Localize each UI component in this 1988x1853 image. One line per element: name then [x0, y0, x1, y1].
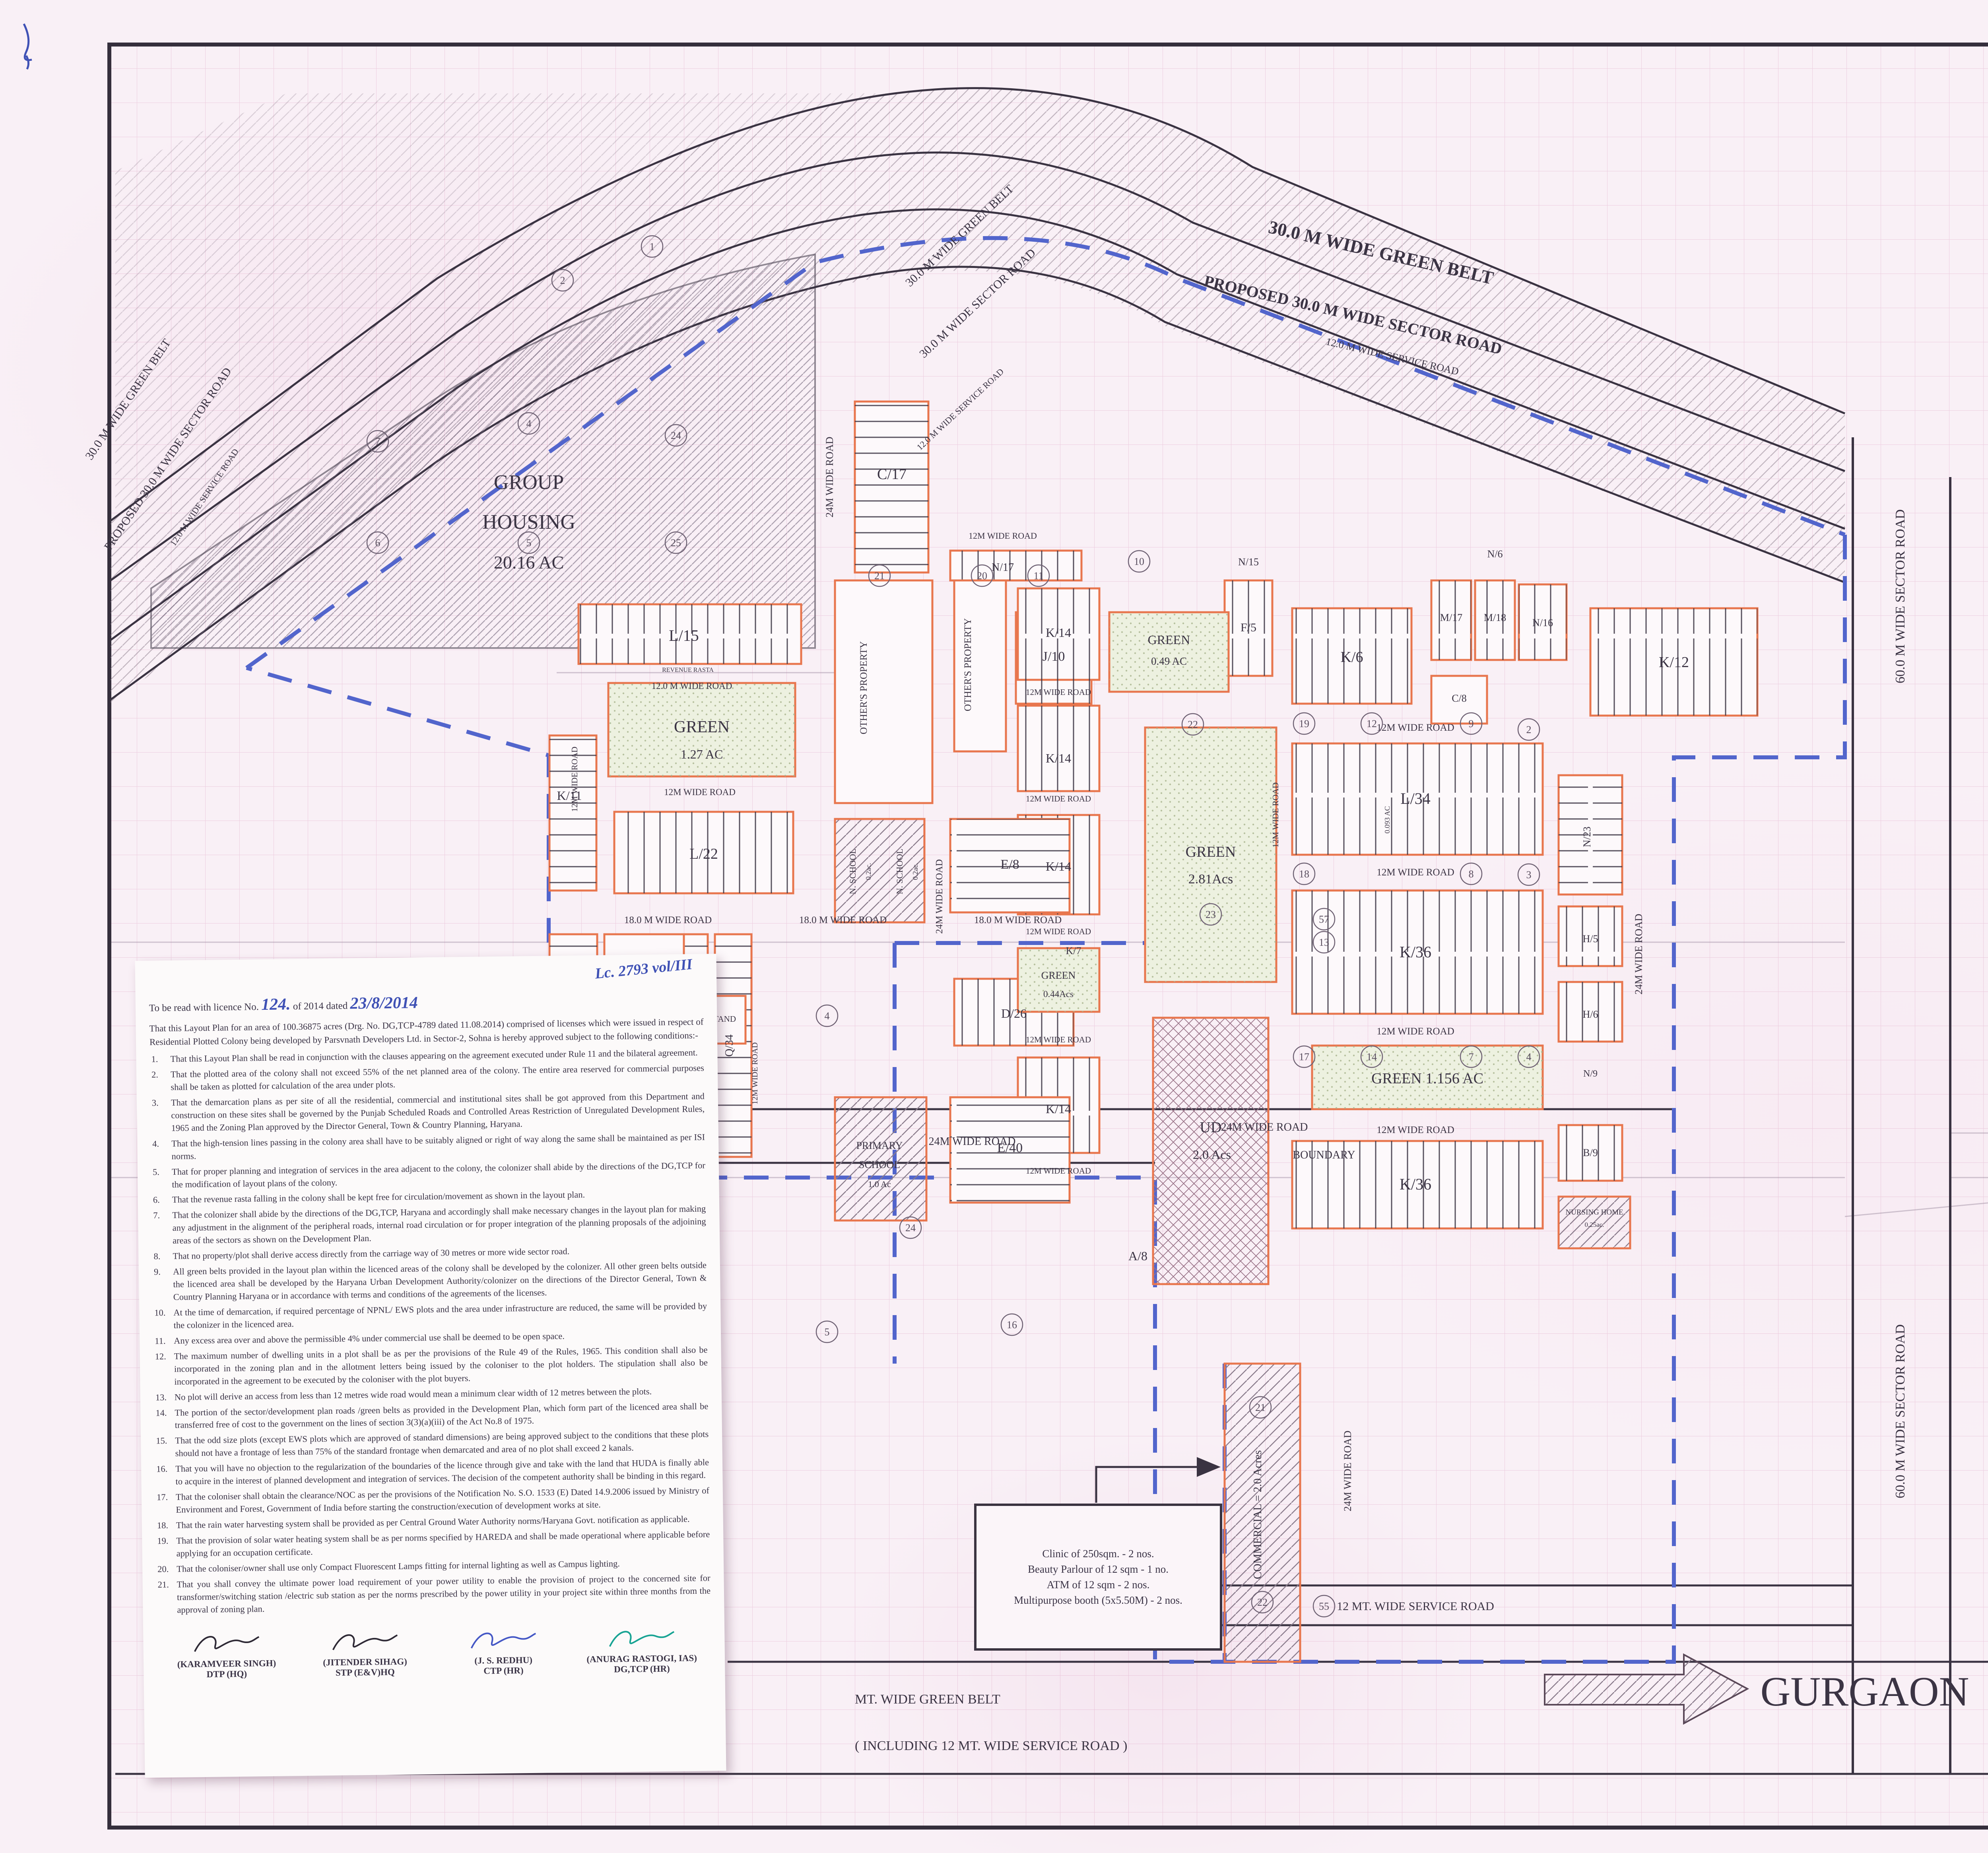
plot-number: 6	[375, 537, 381, 549]
note-box-line: ATM of 12 sqm - 2 nos.	[977, 1579, 1220, 1591]
map-label: 12M WIDE ROAD	[1376, 1125, 1454, 1135]
plot-number: 2	[560, 275, 565, 286]
signatory: (ANURAG RASTOGI, IAS) DG,TCP (HR)	[576, 1623, 707, 1675]
licence-line-mid: of 2014 dated	[293, 1000, 348, 1012]
plot-number: 21	[1255, 1402, 1266, 1413]
map-label: K/7	[1066, 945, 1081, 957]
licence-condition: That you will have no objection to the r…	[175, 1456, 709, 1488]
map-label: OTHER'S PROPERTY	[858, 641, 869, 734]
map-label: 60.0 M WIDE SECTOR ROAD	[1893, 509, 1908, 683]
map-label: GREEN 1.156 AC	[1371, 1070, 1483, 1087]
signatory: (JITENDER SIHAG) STP (E&V)HQ	[299, 1627, 431, 1678]
map-label: N/17	[992, 561, 1014, 574]
licence-line: To be read with licence No. 124. of 2014…	[149, 990, 703, 1016]
plot-number: 57	[1319, 914, 1329, 925]
plot-number: 8	[1469, 868, 1474, 880]
licence-condition: That for proper planning and integration…	[172, 1159, 706, 1191]
map-label: H/6	[1583, 1009, 1598, 1020]
note-box-line: Beauty Parlour of 12 sqm - 1 no.	[977, 1563, 1220, 1576]
licence-condition: That the provision of solar water heatin…	[176, 1528, 710, 1560]
plot-number: 24	[905, 1222, 916, 1234]
plot-number: 9	[1469, 718, 1474, 730]
map-label: SCHOOL	[859, 1159, 900, 1170]
map-label: 20.16 AC	[494, 552, 564, 572]
map-label: 12M WIDE ROAD	[664, 787, 736, 797]
map-label: 12M WIDE ROAD	[1376, 867, 1454, 878]
map-label: 12M WIDE ROAD	[1026, 687, 1091, 697]
drawing-sheet: 30.0 M WIDE GREEN BELTPROPOSED 30.0 M WI…	[0, 0, 1988, 1853]
map-label: K/14	[1046, 625, 1071, 640]
map-label: 12M WIDE ROAD	[1026, 927, 1091, 936]
map-label: 24M WIDE ROAD	[1633, 914, 1644, 994]
map-label: H/5	[1583, 933, 1598, 945]
map-label: 60.0 M WIDE SECTOR ROAD	[1893, 1324, 1908, 1498]
map-label: 12M WIDE ROAD	[1376, 1026, 1454, 1037]
map-label: 12M WIDE ROAD	[1026, 1035, 1091, 1044]
plot-number: 22	[1257, 1597, 1268, 1608]
map-label: 24M WIDE ROAD	[1221, 1121, 1308, 1133]
map-label: 24M WIDE ROAD	[929, 1135, 1016, 1148]
map-label: D/26	[1001, 1006, 1027, 1021]
licence-no-handwritten: 124.	[261, 995, 291, 1014]
map-label: L/34	[1400, 790, 1431, 807]
licence-condition: The maximum number of dwelling units in …	[174, 1343, 708, 1388]
plot-number: 4	[526, 418, 532, 429]
map-label: N. SCHOOL	[848, 849, 858, 894]
map-label: HOUSING	[482, 511, 575, 534]
map-label: 2.81Acs	[1188, 872, 1233, 887]
licence-condition: That the plotted area of the colony shal…	[171, 1062, 705, 1094]
map-label: REVENUE RASTA	[662, 667, 714, 673]
licence-condition: That the coloniser shall obtain the clea…	[176, 1484, 710, 1516]
licence-condition: That you shall convey the ultimate power…	[177, 1572, 711, 1616]
plot-number: 11	[1033, 570, 1043, 582]
map-label: K/14	[1046, 751, 1071, 765]
plot-number: 4	[1526, 1051, 1532, 1063]
signatory-title: STP (E&V)HQ	[299, 1667, 431, 1678]
map-label: 2.0 Acs	[1193, 1147, 1231, 1162]
map-label: 12M WIDE ROAD	[751, 1042, 759, 1104]
licence-condition: All green belts provided in the layout p…	[173, 1259, 707, 1304]
map-label: K/36	[1400, 1175, 1431, 1193]
plot-number: 7	[1469, 1051, 1474, 1063]
plot-number: 13	[1319, 937, 1329, 948]
plot-number: 2	[1526, 724, 1532, 735]
map-label: 12 MT. WIDE SERVICE ROAD	[1337, 1600, 1494, 1613]
plot-number: 24	[671, 430, 681, 441]
licence-conditions-sheet: Lc. 2793 vol/III To be read with licence…	[135, 954, 726, 1778]
map-label: K/6	[1341, 649, 1363, 666]
map-label: PRIMARY	[856, 1140, 903, 1151]
map-label: F/5	[1241, 621, 1256, 634]
map-label: GROUP	[494, 471, 564, 494]
plot-number: 23	[1206, 909, 1216, 920]
map-label: GREEN	[1186, 844, 1236, 860]
map-label: K/14	[1046, 1102, 1071, 1116]
map-label: L/22	[689, 846, 718, 862]
plot-number: 3	[1526, 869, 1532, 881]
map-label: C/8	[1452, 693, 1467, 704]
signatory-title: DG,TCP (HR)	[576, 1663, 707, 1675]
signature-squiggle	[606, 1624, 678, 1652]
map-label: 12M WIDE ROAD	[1026, 1166, 1091, 1176]
commercial-facilities-note: Clinic of 250sqm. - 2 nos. Beauty Parlou…	[974, 1504, 1222, 1651]
map-label: 12M WIDE ROAD	[1271, 782, 1280, 848]
map-label: B/9	[1583, 1147, 1598, 1158]
signatories-row: (KARAMVEER SINGH) DTP (HQ) (JITENDER SIH…	[157, 1623, 711, 1680]
licence-ref-handwritten: Lc. 2793 vol/III	[594, 955, 693, 982]
map-label: N. SCHOOL	[895, 849, 905, 894]
plot-number: 20	[977, 570, 987, 582]
plot-number: 10	[1134, 556, 1144, 567]
plot-number: 18	[1299, 868, 1309, 880]
licence-condition: At the time of demarcation, if required …	[173, 1300, 707, 1331]
map-label: 24M WIDE ROAD	[1342, 1430, 1353, 1511]
map-label: N/6	[1487, 548, 1503, 560]
map-label: K/36	[1400, 943, 1431, 961]
signatory-title: CTP (HR)	[438, 1665, 569, 1676]
map-label: 24M WIDE ROAD	[824, 437, 835, 517]
map-label: J/10	[1043, 649, 1065, 664]
licence-conditions-list: That this Layout Plan shall be read in c…	[149, 1046, 711, 1616]
licence-condition: That the colonizer shall abide by the di…	[172, 1203, 706, 1247]
map-label: L/15	[669, 627, 699, 644]
licence-line-pre: To be read with licence No.	[149, 1001, 259, 1013]
signatory-name: (ANURAG RASTOGI, IAS)	[576, 1653, 707, 1665]
map-label: 12M WIDE ROAD	[969, 531, 1037, 541]
plot-number: 1	[650, 241, 655, 252]
plot-number: 7	[375, 436, 381, 447]
signatory: (KARAMVEER SINGH) DTP (HQ)	[161, 1628, 292, 1680]
map-label: N/9	[1583, 1069, 1598, 1079]
map-label: 12M WIDE ROAD	[1376, 722, 1454, 733]
signatory-name: (KARAMVEER SINGH)	[161, 1658, 292, 1670]
map-label: Q/34	[723, 1034, 736, 1057]
plot-number: 25	[671, 537, 681, 549]
map-label: K/12	[1659, 654, 1689, 671]
map-label: 0.093 AC	[1383, 806, 1391, 833]
map-label: GURGAON	[1761, 1668, 1969, 1715]
plot-number: 12	[1367, 718, 1377, 730]
map-label: 0.25ac.	[1584, 1221, 1604, 1228]
signature-squiggle	[190, 1629, 262, 1657]
map-label: 12.0 M WIDE ROAD	[652, 681, 732, 691]
plot-number: 4	[825, 1010, 830, 1022]
map-label: E/8	[1000, 857, 1019, 872]
map-label: 0.2ac.	[911, 863, 919, 880]
map-label: NURSING HOME	[1565, 1208, 1623, 1217]
map-label: GREEN	[674, 718, 730, 736]
map-label: N/15	[1238, 556, 1259, 568]
map-label: M/17	[1440, 612, 1462, 623]
plot-number: 21	[874, 570, 885, 582]
plot-number: 55	[1319, 1601, 1329, 1612]
note-box-line: Multipurpose booth (5x5.50M) - 2 nos.	[977, 1594, 1220, 1607]
plot-number: 17	[1299, 1051, 1309, 1063]
signature-squiggle	[467, 1625, 539, 1654]
map-label: GREEN	[1041, 970, 1076, 981]
map-label: K/14	[1046, 859, 1071, 873]
map-label: COMMERCIAL = 2.0 Acres	[1252, 1450, 1264, 1579]
map-label: 0.44Acs	[1043, 989, 1074, 999]
signatory-title: DTP (HQ)	[161, 1668, 292, 1680]
map-label: A/8	[1128, 1249, 1147, 1263]
map-label: UD	[1200, 1119, 1222, 1136]
map-label: 12M WIDE ROAD	[570, 747, 579, 812]
plot-number: 14	[1367, 1051, 1377, 1063]
map-label: ( INCLUDING 12 MT. WIDE SERVICE ROAD )	[855, 1739, 1127, 1753]
map-label: 0.2ac.	[864, 863, 872, 880]
signatory-name: (J. S. REDHU)	[438, 1654, 569, 1666]
map-label: BOUNDARY	[1293, 1149, 1355, 1161]
map-label: 12M WIDE ROAD	[1026, 794, 1091, 803]
map-label: 18.0 M WIDE ROAD	[799, 915, 887, 926]
map-label: OTHER'S PROPERTY	[963, 618, 973, 711]
map-label: 0.49 AC	[1151, 655, 1187, 667]
licence-condition: The portion of the sector/development pl…	[175, 1400, 709, 1432]
signatory-name: (JITENDER SIHAG)	[299, 1656, 431, 1668]
map-label: 1.27 AC	[681, 747, 723, 761]
map-label: GREEN	[1148, 633, 1190, 647]
plot-number: 19	[1299, 718, 1309, 730]
plot-number: 22	[1188, 719, 1198, 730]
map-label: 18.0 M WIDE ROAD	[974, 915, 1062, 926]
licence-condition: That the odd size plots (except EWS plot…	[175, 1428, 709, 1460]
plot-number: 5	[825, 1326, 830, 1338]
plot-number: 5	[526, 537, 532, 549]
map-label: 24M WIDE ROAD	[934, 859, 945, 934]
signatory: (J. S. REDHU) CTP (HR)	[437, 1625, 569, 1676]
pen-scribble	[24, 24, 32, 69]
plot-number: 16	[1007, 1319, 1017, 1331]
map-label: N/16	[1532, 617, 1553, 629]
signature-squiggle	[329, 1627, 401, 1656]
map-label: C/17	[877, 466, 907, 483]
licence-condition: That the high-tension lines passing in t…	[171, 1131, 705, 1162]
map-label: 1.0 Ac	[868, 1179, 891, 1189]
map-label: N/23	[1581, 827, 1593, 847]
map-label: 18.0 M WIDE ROAD	[624, 915, 712, 926]
map-label: MT. WIDE GREEN BELT	[855, 1692, 1000, 1707]
licence-intro: That this Layout Plan for an area of 100…	[149, 1015, 704, 1049]
licence-condition: That the demarcation plans as per site o…	[171, 1090, 705, 1134]
note-box-line: Clinic of 250sqm. - 2 nos.	[977, 1548, 1220, 1560]
licence-date-handwritten: 23/8/2014	[350, 993, 418, 1013]
map-label: M/18	[1484, 612, 1506, 623]
